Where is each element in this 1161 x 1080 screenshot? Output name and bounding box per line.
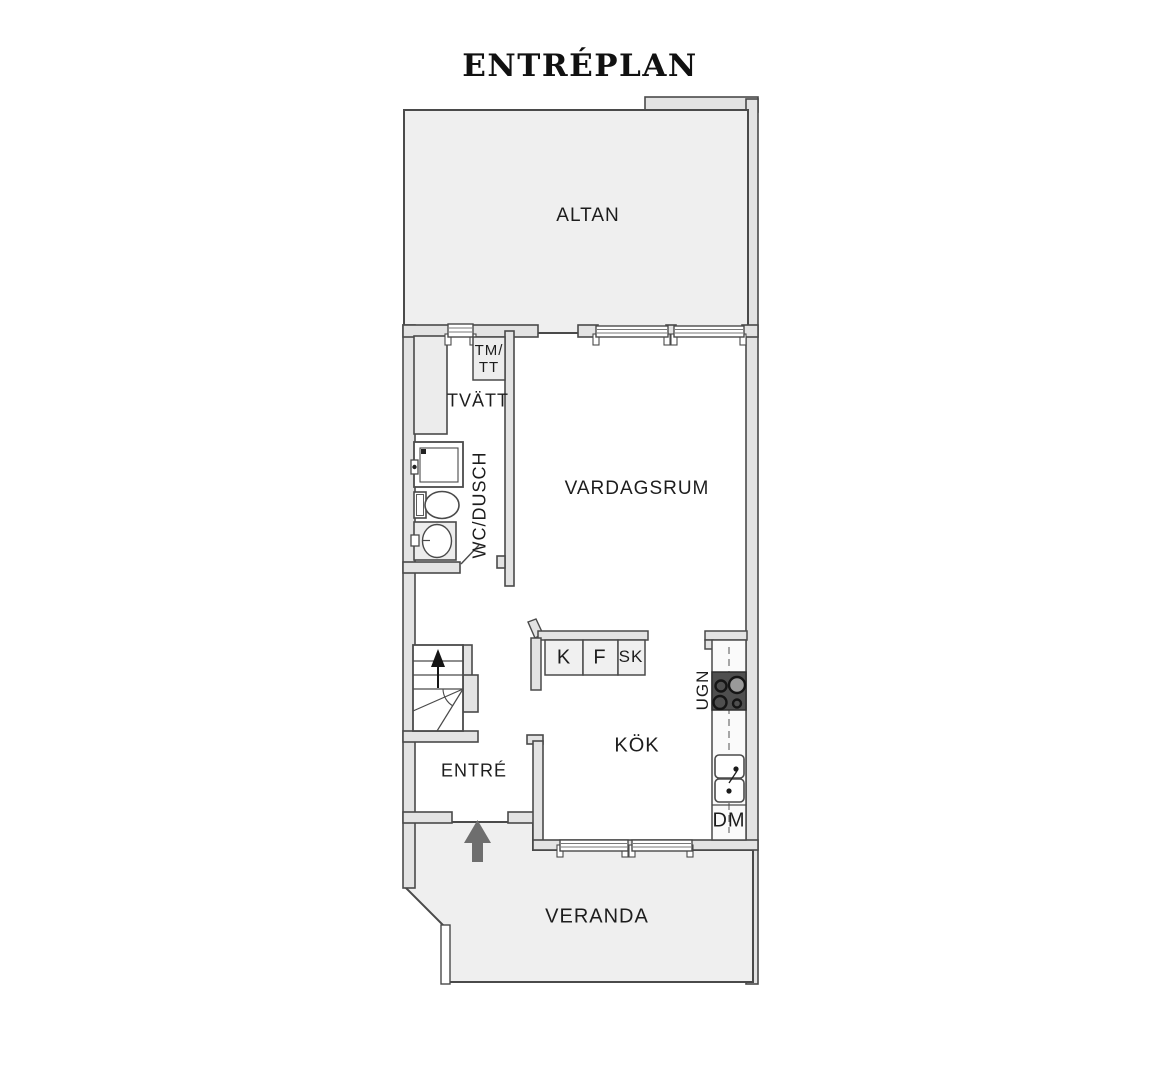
wc-bottom-wall [403, 562, 460, 573]
room-label-kok: KÖK [614, 735, 659, 758]
floorplan-page: ENTRÉPLAN [0, 0, 1161, 1080]
stair-bottom-wall [403, 731, 478, 742]
appliance-label-skap: SK [619, 647, 644, 667]
veranda-step [441, 925, 450, 984]
shower [411, 442, 463, 487]
stove-burners-icon [712, 672, 746, 710]
toilet [414, 492, 459, 519]
appliance-label-dm: DM [712, 810, 745, 833]
window-tvatt [445, 324, 476, 345]
wc-vardagsrum-wall [505, 331, 514, 586]
room-label-entre: ENTRÉ [441, 761, 507, 782]
room-label-wc-dusch: WC/DUSCH [470, 452, 491, 559]
appliance-label-frys: F [593, 647, 606, 670]
shaft [414, 336, 447, 434]
room-label-tvatt: TVÄTT [447, 391, 509, 412]
window-vardagsrum-left [593, 326, 670, 345]
window-vardagsrum-right [671, 326, 746, 345]
room-label-vardagsrum: VARDAGSRUM [565, 478, 710, 500]
room-label-veranda: VERANDA [545, 906, 649, 929]
entre-kok-wall [533, 741, 543, 850]
tm-label: TM/ [475, 342, 504, 359]
shower-head-icon [412, 465, 416, 469]
room-label-altan: ALTAN [556, 205, 619, 227]
staircase [413, 645, 463, 731]
tt-label: TT [479, 359, 499, 376]
appliance-label-kyl: K [557, 647, 571, 670]
appliance-label-tm-tt: TM/ TT [475, 342, 504, 377]
appliance-label-ugn: UGN [693, 670, 713, 711]
kitchen-sink-icon [715, 755, 744, 802]
washbasin [411, 522, 456, 560]
